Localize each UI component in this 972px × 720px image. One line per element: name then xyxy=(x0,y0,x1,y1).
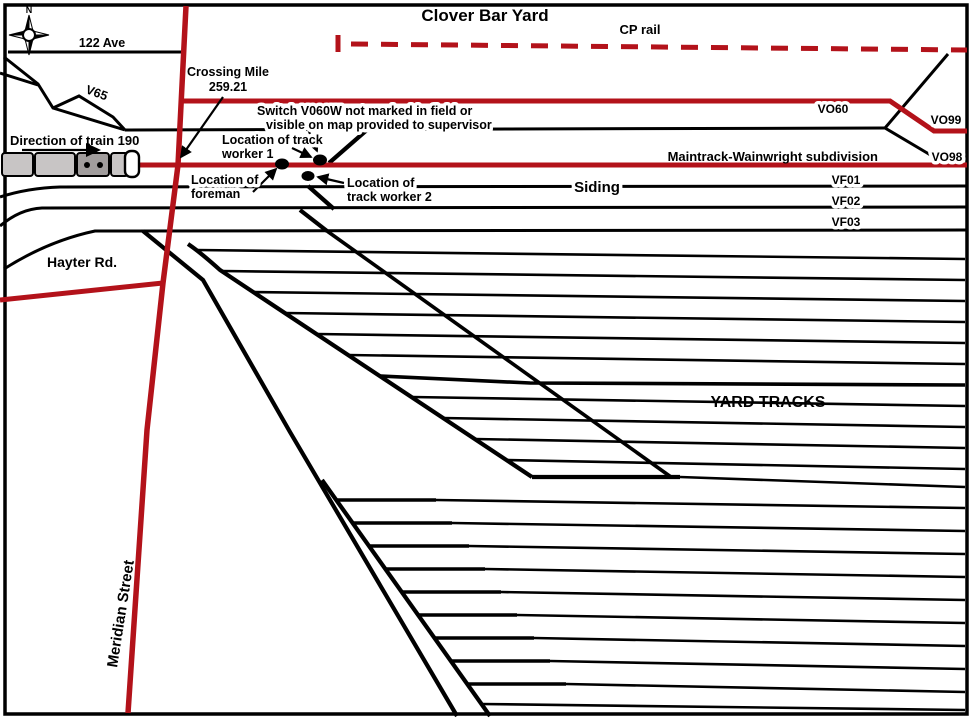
yard-ladder-a xyxy=(143,231,457,716)
vo99-label: VO99 xyxy=(931,113,962,127)
foreman-label-line2: foreman xyxy=(191,187,240,201)
map-canvas: N Clover Bar Yard CP rail 122 Ave V65 Cr… xyxy=(0,0,972,720)
train-car-1 xyxy=(2,153,33,176)
compass-north-label: N xyxy=(26,5,33,15)
train-window-dot xyxy=(97,162,103,168)
worker2-arrow xyxy=(318,177,344,183)
train-locomotive-nose xyxy=(125,151,139,177)
compass-rose: N xyxy=(9,5,49,55)
switch-note-line1: Switch V060W not marked in field or xyxy=(257,104,472,118)
train-190 xyxy=(2,151,139,177)
hayter-rd-label: Hayter Rd. xyxy=(47,254,117,270)
worker1-label-line1: Location of track xyxy=(222,133,323,147)
track-siding-lead-line xyxy=(125,128,885,130)
yard-ladder-b xyxy=(188,244,532,477)
yard-tracks-label: YARD TRACKS xyxy=(711,394,826,411)
yard-ladder-a2 xyxy=(322,480,490,716)
crossover-siding-vf02 xyxy=(308,186,334,209)
cp-rail-label: CP rail xyxy=(620,22,661,37)
switch-v060w-track xyxy=(329,129,368,163)
foreman-location-dot xyxy=(275,159,289,170)
track-worker-2-location-dot xyxy=(302,171,315,181)
crossover-vf02-vf03 xyxy=(300,210,327,231)
track-worker-1-location-dot xyxy=(313,155,327,166)
crossing-mile-label-line1: Crossing Mile xyxy=(187,65,269,79)
vo60-label: VO60 xyxy=(818,102,849,116)
crossing-mile-label-line2: 259.21 xyxy=(209,80,247,94)
maintrack-label: Maintrack-Wainwright subdivision xyxy=(668,149,878,164)
direction-of-train-label: Direction of train 190 xyxy=(10,133,139,148)
road-122-ave-label: 122 Ave xyxy=(79,36,125,50)
vo98-label: VO98 xyxy=(932,150,963,164)
compass-center xyxy=(23,29,35,41)
track-vf02-line xyxy=(0,207,967,226)
yard-rungs-lower xyxy=(336,500,965,710)
vf02-label: VF02 xyxy=(832,194,861,208)
train-car-3 xyxy=(77,153,109,176)
worker2-label-line1: Location of xyxy=(347,176,415,190)
track-v65-hump xyxy=(53,96,125,130)
switch-note-line2: visible on map provided to supervisor xyxy=(266,118,492,132)
map-title: Clover Bar Yard xyxy=(421,6,548,25)
cp-rail-dashed-line xyxy=(351,44,967,50)
road-meridian-line xyxy=(128,6,186,713)
vf03-label: VF03 xyxy=(832,215,861,229)
foreman-label-line1: Location of xyxy=(191,173,259,187)
vf01-label: VF01 xyxy=(832,173,861,187)
road-hayter-line xyxy=(0,283,163,300)
crossing-mile-arrow xyxy=(181,97,223,157)
clover-bar-yard-map: N Clover Bar Yard CP rail 122 Ave V65 Cr… xyxy=(0,0,972,720)
train-car-2 xyxy=(35,153,75,176)
siding-label: Siding xyxy=(574,179,620,196)
worker1-arrow xyxy=(292,148,311,157)
worker2-label-line2: track worker 2 xyxy=(347,190,432,204)
worker1-label-line2: worker 1 xyxy=(221,147,273,161)
yard-rungs-upper xyxy=(196,250,965,487)
track-siding-vf01-line xyxy=(0,186,967,197)
train-window-dot xyxy=(84,162,90,168)
